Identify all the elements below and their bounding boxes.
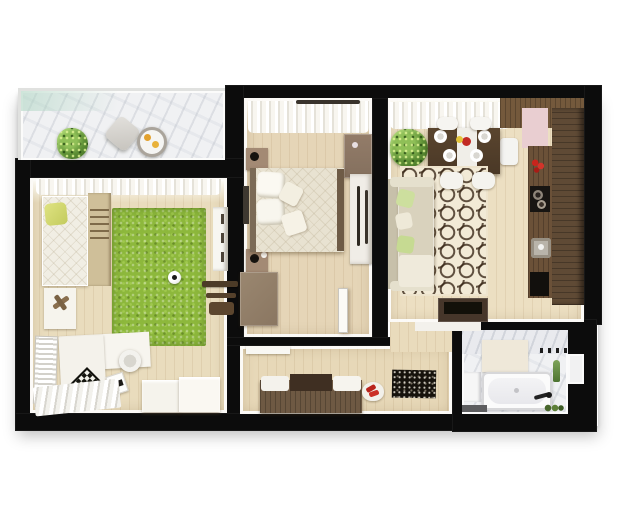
wardrobe-handle (365, 190, 368, 244)
table-lamp-icon (250, 254, 259, 263)
kids-curtains (36, 179, 221, 195)
sofa-green-pillow (396, 235, 415, 254)
sofa-chaise-cushion (399, 255, 433, 287)
curtain-rod (296, 100, 360, 104)
table-lamp-icon (250, 152, 259, 161)
fridge (500, 138, 518, 165)
bedside-cup (261, 252, 267, 258)
towel-panel (482, 340, 528, 372)
plate (470, 149, 483, 162)
plate (443, 149, 456, 162)
bedroom-curtains (248, 101, 369, 133)
tv-icon (444, 302, 482, 314)
sink-faucet (538, 244, 544, 250)
cooking-pot (537, 200, 546, 209)
bedroom-door-leaf (338, 288, 348, 333)
bathroom-vanity (464, 372, 481, 402)
storage-box (142, 380, 180, 412)
bed-foot-frame (337, 169, 344, 251)
doormat (392, 370, 436, 399)
kitchen-appliance (530, 272, 549, 296)
hallway-wall-shelf (246, 346, 290, 354)
plate (478, 130, 491, 143)
dresser-decor (352, 142, 358, 148)
sofa-armrest (390, 177, 434, 187)
bench-cushion (261, 376, 289, 391)
cooking-pot (533, 190, 543, 200)
green-rug (112, 208, 206, 346)
dresser-handles (221, 214, 224, 262)
green-bottles (544, 404, 564, 412)
dining-chair (440, 172, 463, 189)
bedroom-wardrobe (350, 174, 372, 264)
bedroom-dresser (344, 134, 372, 178)
kitchen-tall-cabinets (552, 108, 584, 305)
balcony-glass-reflection (21, 91, 117, 111)
sofa-pillow (395, 212, 414, 231)
wall-bars (202, 281, 238, 287)
dining-chair (470, 117, 491, 130)
wall-left-outer (15, 158, 31, 431)
dining-chair (437, 117, 458, 130)
dining-chair (472, 172, 495, 189)
storage-box (179, 377, 220, 412)
floor-plan-image (0, 0, 620, 512)
wall-stub-white (415, 322, 481, 331)
flower-vase (456, 136, 463, 143)
toy-table (44, 288, 76, 329)
wall-bars (206, 293, 236, 298)
tray-fruit (152, 141, 159, 148)
red-kitchen-decor (531, 158, 545, 174)
wall-bottom (15, 413, 465, 431)
kids-bed-yellow-pillow (44, 202, 68, 226)
bath-faucet-icon (546, 392, 552, 398)
bench-cushion (333, 376, 361, 391)
bathroom-plant-sprig (553, 360, 560, 382)
desk-chair (119, 350, 141, 372)
bath-mat (462, 405, 487, 412)
bathtub-drain (514, 388, 519, 393)
bedroom-corner-dresser (240, 272, 278, 326)
plate (434, 130, 447, 143)
flower-vase (462, 137, 471, 146)
bathroom-nook (568, 354, 584, 384)
wall-right (584, 85, 602, 325)
ladder-rungs (90, 205, 109, 239)
balcony-plant-icon (57, 128, 88, 159)
bedroom-radiator (243, 186, 249, 224)
kids-stool (209, 302, 234, 315)
soccer-ball-patch (172, 275, 177, 280)
kitchen-pink-wall (522, 108, 548, 148)
wardrobe-handle (357, 186, 360, 246)
wall-hallway-top (225, 337, 392, 346)
bench-tray (290, 374, 332, 391)
living-plant-icon (390, 129, 428, 167)
tray-fruit (144, 134, 151, 141)
towel-hooks (540, 348, 568, 353)
wall-bedroom-living (372, 98, 388, 346)
bed-headboard (250, 168, 256, 252)
wall-under-balcony (15, 158, 244, 178)
